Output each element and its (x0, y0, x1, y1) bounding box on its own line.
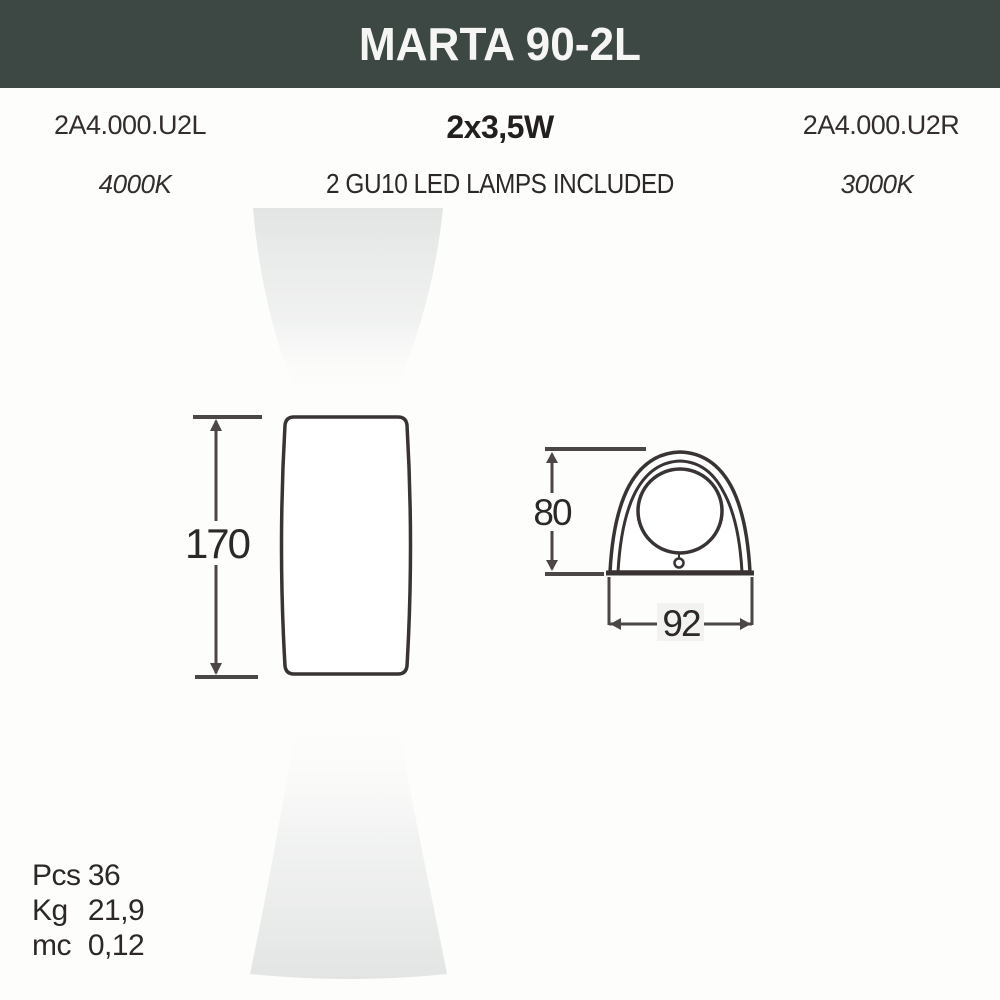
packaging-label: Pcs (32, 858, 80, 893)
packaging-row-pcs: Pcs 36 (32, 858, 144, 893)
datasheet-page: MARTA 90-2L 2A4.000.U2L 2x3,5W 2A4.000.U… (0, 0, 1000, 1000)
technical-drawing: 170 80 (0, 0, 1000, 1000)
packaging-value: 36 (88, 858, 120, 893)
lamp-opening-circle (638, 469, 722, 553)
side-view: 80 92 (531, 449, 754, 644)
front-view: 170 (185, 417, 411, 677)
fixture-front-outline (282, 417, 411, 674)
light-beam-up (253, 208, 443, 400)
dim-arrow-up (210, 419, 222, 431)
packaging-value: 0,12 (88, 928, 144, 963)
packaging-row-mc: mc 0,12 (32, 928, 144, 963)
dim-arrow-right (740, 618, 751, 630)
dim-arrow-down (546, 560, 558, 571)
packaging-row-kg: Kg 21,9 (32, 893, 144, 928)
packaging-info: Pcs 36 Kg 21,9 mc 0,12 (32, 858, 144, 963)
side-height-label: 80 (533, 492, 572, 533)
side-width-label: 92 (662, 603, 700, 644)
light-beam-down (250, 714, 447, 979)
dim-arrow-left (610, 618, 621, 630)
packaging-label: Kg (32, 893, 80, 928)
packaging-value: 21,9 (88, 893, 144, 928)
side-width-dimension: 92 (609, 577, 752, 644)
dim-arrow-down (210, 663, 222, 675)
packaging-label: mc (32, 928, 80, 963)
front-height-dimension: 170 (185, 417, 262, 677)
dim-arrow-up (546, 452, 558, 463)
front-height-label: 170 (185, 520, 250, 567)
